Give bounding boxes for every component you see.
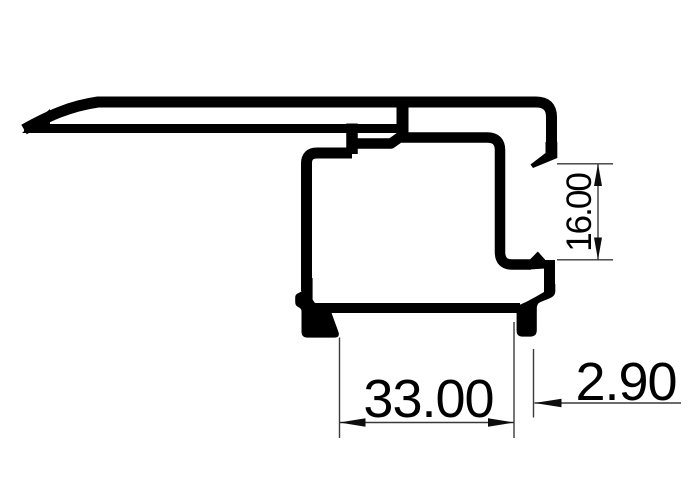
profile-right-foot [517, 284, 556, 337]
profile-lower-barb [530, 252, 546, 270]
technical-drawing-canvas: 16.00 33.00 2.90 [0, 0, 700, 491]
dimension-lip-width: 2.90 [534, 349, 682, 418]
dim-label-groove-height: 16.00 [560, 173, 599, 252]
profile-cross-section-drawing: 16.00 33.00 2.90 [0, 0, 700, 491]
dimension-base-width: 33.00 [340, 322, 515, 438]
profile-upper-barb [531, 142, 558, 168]
dim-arrow-left [535, 399, 562, 408]
profile-geometry [22, 101, 557, 338]
dimension-groove-height: 16.00 [557, 164, 613, 260]
dim-label-base-width: 33.00 [363, 369, 493, 429]
profile-left-wall [307, 153, 353, 291]
profile-inner-channel-wall [347, 138, 532, 265]
dim-arrow-left [340, 418, 366, 427]
dim-label-lip-width: 2.90 [575, 352, 676, 412]
